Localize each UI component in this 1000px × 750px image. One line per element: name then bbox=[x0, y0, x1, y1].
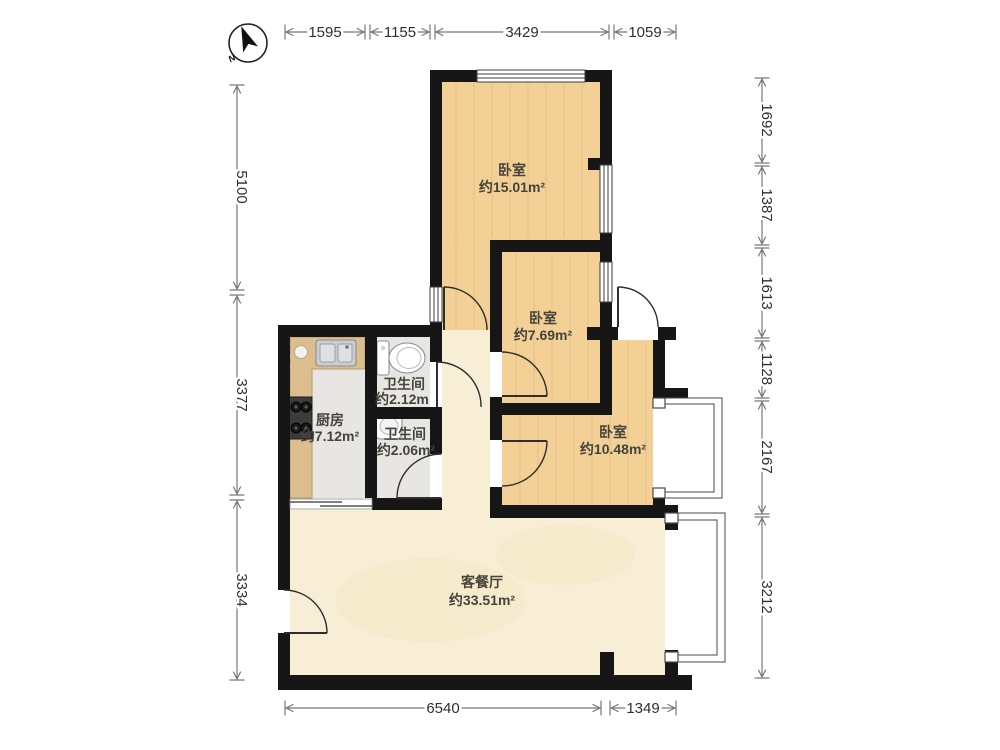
dim-top-1: 1155 bbox=[370, 24, 430, 41]
kitchen-sliding-door bbox=[290, 499, 372, 509]
dim-label: 1128 bbox=[758, 353, 775, 385]
dim-label: 3212 bbox=[758, 580, 775, 613]
dim-right-4: 2167 bbox=[755, 401, 775, 514]
dim-label: 1155 bbox=[384, 24, 416, 41]
dim-right-5: 3212 bbox=[755, 517, 775, 678]
dim-right-2: 1613 bbox=[755, 248, 775, 338]
bathroom-2-name: 卫生间 bbox=[384, 426, 426, 442]
dim-left-0: 5100 bbox=[230, 85, 250, 290]
bedroom-middle-name: 卧室 bbox=[529, 310, 557, 326]
dim-label: 2167 bbox=[758, 440, 775, 473]
living-dining-area: 约33.51m² bbox=[449, 592, 515, 608]
dim-bottom-0: 6540 bbox=[285, 700, 601, 717]
dim-label: 3429 bbox=[505, 24, 538, 41]
dim-label: 1059 bbox=[628, 24, 661, 41]
marble-texture bbox=[495, 525, 635, 585]
dim-label: 1692 bbox=[758, 103, 775, 136]
dim-left-2: 3334 bbox=[230, 500, 250, 680]
door-entry bbox=[618, 287, 658, 327]
dim-right-3: 1128 bbox=[755, 341, 775, 398]
dim-label: 5100 bbox=[233, 170, 250, 203]
toilet-icon bbox=[377, 341, 425, 375]
living-dining-name: 客餐厅 bbox=[460, 574, 503, 590]
window-bedroom-middle-east bbox=[600, 262, 612, 302]
dim-label: 1387 bbox=[758, 188, 775, 221]
bedroom-middle-area: 约7.69m² bbox=[514, 327, 573, 343]
dim-top-2: 3429 bbox=[435, 24, 609, 41]
counter-bowl bbox=[295, 346, 308, 359]
bathroom-1-name: 卫生间 bbox=[383, 376, 425, 392]
bedroom-top-floor-ext bbox=[442, 240, 490, 330]
compass: N bbox=[227, 23, 268, 64]
dim-left-1: 3377 bbox=[230, 295, 250, 495]
bedroom-top-floor bbox=[442, 82, 600, 240]
window-bedroom-top bbox=[477, 70, 585, 82]
dim-bottom-1: 1349 bbox=[610, 700, 676, 717]
dim-label: 3334 bbox=[233, 573, 250, 606]
dim-label: 1613 bbox=[758, 276, 775, 309]
dim-right-1: 1387 bbox=[755, 166, 775, 245]
bedroom-top-area: 约15.01m² bbox=[479, 179, 545, 195]
kitchen-area: 约7.12m² bbox=[301, 428, 360, 444]
dim-right-0: 1692 bbox=[755, 78, 775, 163]
bedroom-right-name: 卧室 bbox=[599, 424, 627, 440]
bathroom-1-area: 约2.12m bbox=[375, 391, 429, 407]
bedroom-right-area: 约10.48m² bbox=[580, 441, 646, 457]
dim-label: 1349 bbox=[626, 700, 659, 717]
window-corridor-west bbox=[430, 287, 442, 322]
dim-top-3: 1059 bbox=[614, 24, 676, 41]
floor-plan-drawing: 卧室 约15.01m² 卧室 约7.69m² 卧室 约10.48m² 卫生间 约… bbox=[0, 0, 1000, 750]
window-bedroom-top-east bbox=[600, 165, 612, 233]
dim-label: 3377 bbox=[233, 378, 250, 411]
bay-window-bedroom-right bbox=[653, 398, 722, 498]
kitchen-name: 厨房 bbox=[316, 412, 344, 428]
dim-label: 6540 bbox=[426, 700, 459, 717]
bathroom-2-area: 约2.06m² bbox=[377, 442, 436, 458]
bay-window-living bbox=[665, 513, 725, 662]
bedroom-top-name: 卧室 bbox=[498, 162, 526, 178]
dim-label: 1595 bbox=[308, 24, 341, 41]
dim-top-0: 1595 bbox=[285, 24, 365, 41]
kitchen-sink-icon bbox=[316, 340, 356, 366]
floor-plan-page: 卧室 约15.01m² 卧室 约7.69m² 卧室 约10.48m² 卫生间 约… bbox=[0, 0, 1000, 750]
